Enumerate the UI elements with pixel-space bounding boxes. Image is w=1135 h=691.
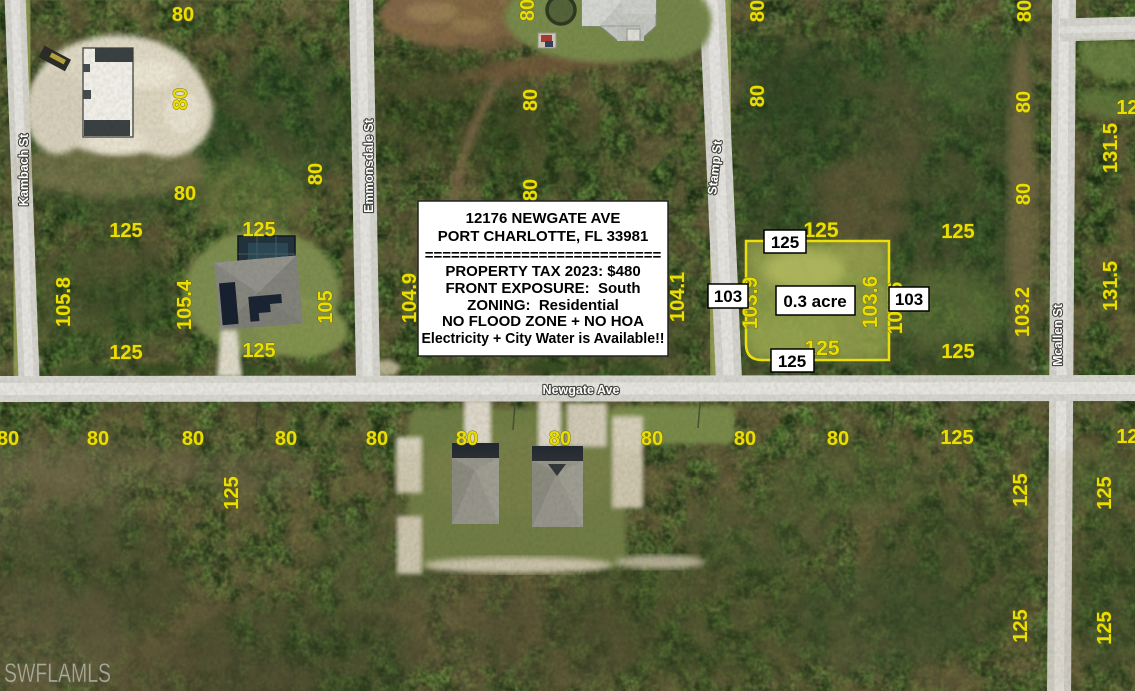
svg-text:104.1: 104.1 [667,272,689,322]
svg-text:125: 125 [941,341,974,363]
svg-text:12176 NEWGATE AVE: 12176 NEWGATE AVE [466,210,621,227]
svg-text:80: 80 [641,428,663,450]
svg-text:103: 103 [714,287,742,306]
svg-text:80: 80 [747,85,769,107]
svg-text:125: 125 [109,220,142,242]
svg-text:103.6: 103.6 [859,276,882,329]
svg-text:125: 125 [941,221,974,243]
svg-text:105.4: 105.4 [174,279,196,330]
svg-text:Emmonsdale St: Emmonsdale St [362,118,376,213]
svg-text:125: 125 [1116,426,1135,448]
svg-text:Newgate Ave: Newgate Ave [543,383,620,397]
svg-text:80: 80 [305,163,327,185]
svg-text:80: 80 [456,428,478,450]
svg-text:80: 80 [182,428,204,450]
svg-text:125: 125 [221,476,243,509]
svg-text:80: 80 [366,428,388,450]
svg-text:80: 80 [174,183,196,205]
svg-text:125: 125 [771,233,799,252]
svg-text:===========================: =========================== [425,247,662,264]
svg-text:Kambach St: Kambach St [17,133,31,206]
svg-text:125: 125 [242,340,275,362]
svg-text:125: 125 [803,219,838,242]
svg-text:ZONING: Residential: ZONING: Residential [467,297,619,314]
svg-text:105: 105 [315,290,337,323]
svg-text:SWFLAMLS: SWFLAMLS [4,658,111,688]
svg-text:125: 125 [242,219,275,241]
svg-text:103: 103 [895,290,923,309]
svg-text:125: 125 [1094,611,1116,644]
svg-text:80: 80 [1013,91,1035,113]
svg-text:105.8: 105.8 [53,277,75,327]
svg-text:80: 80 [87,428,109,450]
svg-text:80: 80 [734,428,756,450]
svg-text:80: 80 [747,0,769,22]
svg-text:80: 80 [827,428,849,450]
svg-text:125: 125 [778,352,806,371]
svg-text:80: 80 [172,4,194,26]
svg-text:131.5: 131.5 [1100,123,1122,173]
svg-text:80: 80 [520,179,542,201]
svg-text:131.5: 131.5 [1100,261,1122,311]
svg-text:80: 80 [1013,183,1035,205]
svg-text:80: 80 [1014,0,1036,22]
svg-text:125: 125 [109,342,142,364]
svg-text:103.2: 103.2 [1012,287,1034,337]
svg-text:80: 80 [520,89,542,111]
svg-text:80: 80 [275,428,297,450]
svg-text:125: 125 [1010,609,1032,642]
svg-text:Mcallen St: Mcallen St [1051,303,1065,366]
svg-text:125: 125 [1094,476,1116,509]
svg-text:104.9: 104.9 [399,273,421,323]
svg-text:80: 80 [170,88,192,110]
svg-text:FRONT EXPOSURE: South: FRONT EXPOSURE: South [446,280,641,297]
svg-text:80: 80 [549,428,571,450]
svg-text:PORT CHARLOTTE, FL 33981: PORT CHARLOTTE, FL 33981 [438,228,649,245]
svg-text:80: 80 [517,0,539,21]
svg-text:125: 125 [1116,97,1135,119]
svg-text:125: 125 [940,427,973,449]
svg-text:Electricity + City Water is Av: Electricity + City Water is Available!! [422,330,665,347]
svg-text:80: 80 [0,428,19,450]
svg-text:NO FLOOD ZONE + NO HOA: NO FLOOD ZONE + NO HOA [442,313,644,330]
svg-text:PROPERTY TAX 2023: $480: PROPERTY TAX 2023: $480 [445,263,640,280]
svg-text:125: 125 [1010,473,1032,506]
svg-text:0.3 acre: 0.3 acre [783,292,846,311]
